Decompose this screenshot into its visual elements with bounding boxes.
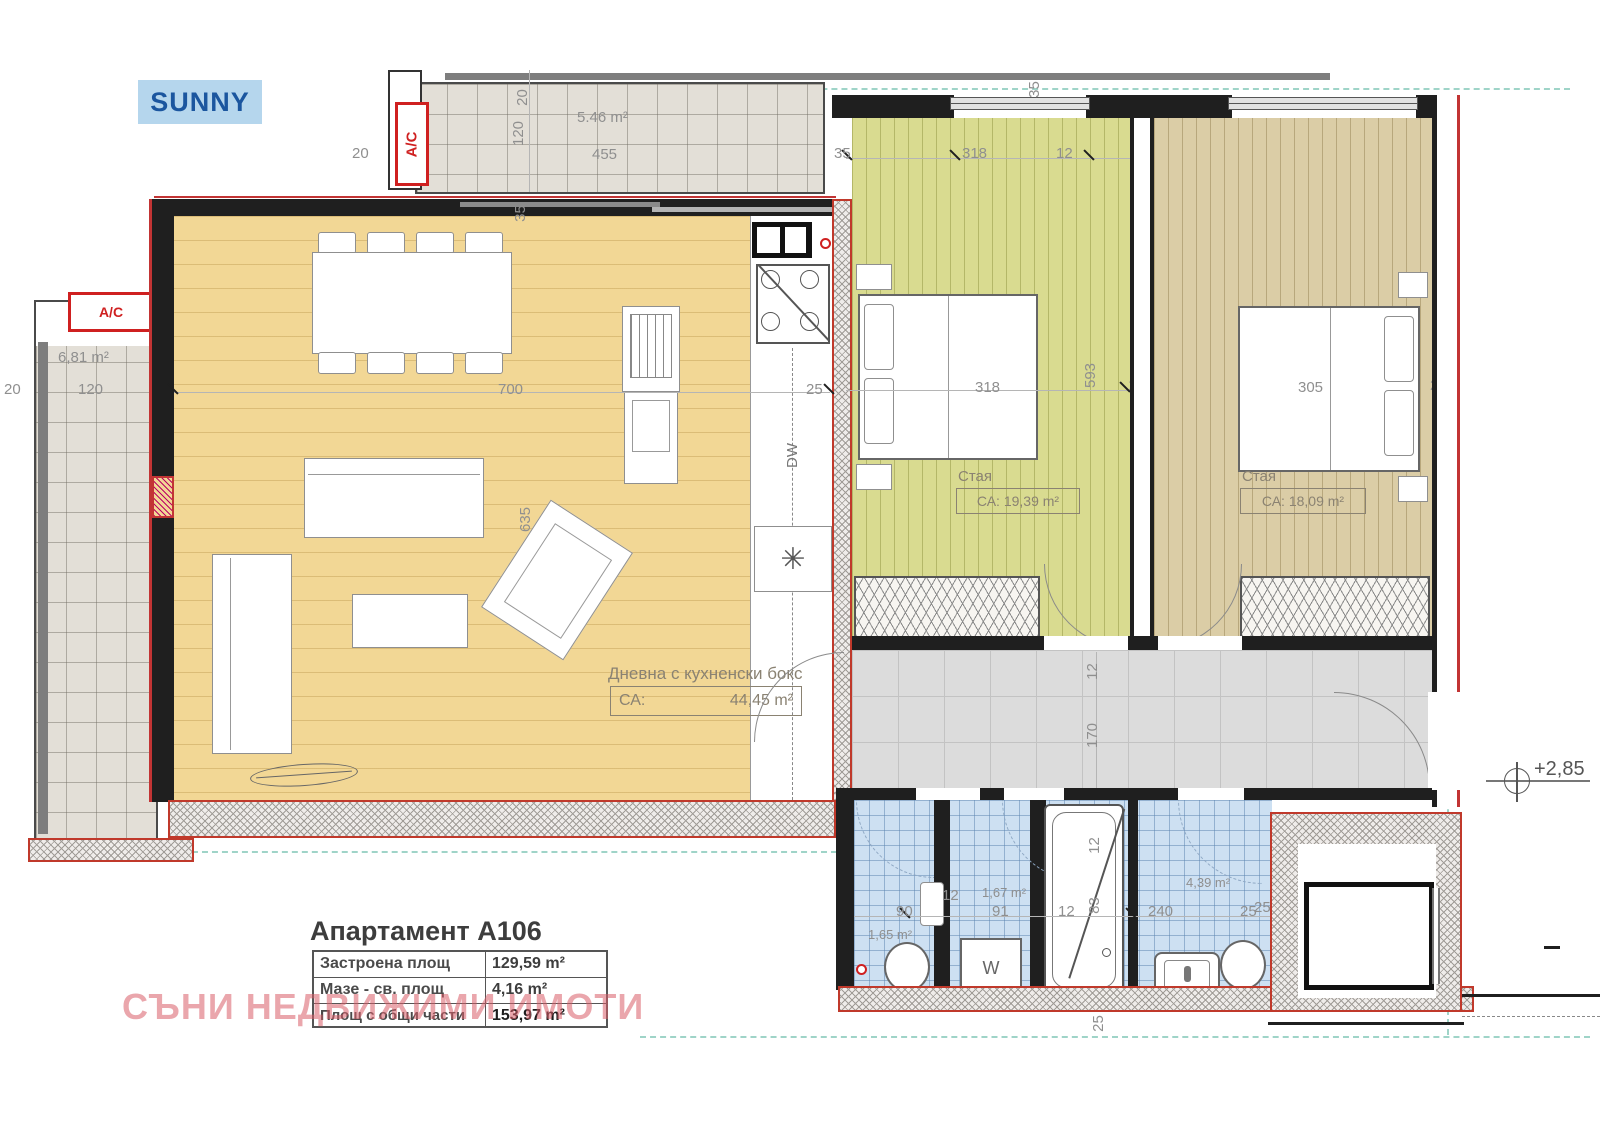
centerline [192,851,837,853]
area-value: СА: 19,39 m² [977,493,1059,509]
bath1-area: 1,65 m² [868,928,912,941]
wall-dash-line [1462,1016,1600,1017]
dim-label: 35 [1027,81,1042,98]
sofa-backrest-line [308,474,480,475]
watermark: СЪНИ НЕДВИЖИМИ ИМОТИ [122,986,644,1028]
row-value: 129,59 m² [486,952,606,977]
bath3-area: 4,39 m² [1186,876,1230,889]
kitchen-island-grill [630,314,672,378]
sink-faucet [1184,966,1191,982]
dim-label: 120 [78,382,103,397]
sofa-vertical [212,554,292,754]
balcony-rail-bar [38,342,48,834]
dim-label: 170 [1085,723,1100,748]
balcony-left-bottom-wall [28,838,194,862]
dim-label: 12 [942,888,959,903]
dim-label: 455 [592,147,617,162]
living-bottom-wall [168,800,836,838]
dim-label: 700 [498,382,523,397]
dining-chair [465,352,503,374]
bath-divider [1128,800,1138,988]
stove-burner [761,312,780,331]
dim-label: 25 [806,382,823,397]
sliding-door [652,207,834,212]
dining-chair [416,352,454,374]
door-gap [916,788,980,800]
dim-label: 593 [1083,363,1098,388]
nightstand [856,264,892,290]
balcony-top-area: 5.46 m² [577,110,628,125]
bedroom2-name: Стая [1242,468,1276,485]
sofa-horizontal [304,458,484,538]
bedroom-divider-wall [1130,118,1154,650]
bedroom-top-wall [1086,95,1232,118]
roof-edge-bar [445,73,1330,80]
door-gap [1044,636,1128,650]
dim-label: 25 [1091,1015,1106,1032]
door-gap [1004,788,1064,800]
apartment-title: Апартамент А106 [310,916,542,947]
dim-label: 20 [4,382,21,397]
dim-label: 318 [962,146,987,161]
bedroom-top-wall [832,95,954,118]
kitchen-sink-bowl [785,227,806,253]
dim-label: 25 [1254,900,1271,915]
area-prefix: СА: [619,692,645,710]
dining-chair [465,232,503,254]
dining-table [312,252,512,354]
living-room-name: Дневна с кухненски бокс [608,664,803,684]
level-cross [1516,762,1518,802]
balcony-top-floor [415,82,825,194]
pillow [864,378,894,444]
dim-label: 240 [1148,904,1173,919]
bathtub-inner [1052,812,1116,988]
bedroom1-name: Стая [958,468,992,485]
dining-chair [318,352,356,374]
bed-blanket-line [1330,308,1331,470]
dim-label: 35 [834,146,851,161]
dim-label: 12 [1087,837,1102,854]
corridor-top-wall [852,636,1432,650]
living-top-wall-redline [154,196,836,198]
dining-chair [367,352,405,374]
door-gap [1158,636,1242,650]
bath-left-wall [836,788,854,990]
outlet-marker [856,964,867,975]
area-value: СА: 18,09 m² [1262,493,1344,509]
wall-line [1268,1022,1464,1025]
dim-label: 12 [1058,904,1075,919]
dining-chair [416,232,454,254]
dim-label: 91 [992,904,1009,919]
dishwasher-label: DW [785,443,800,468]
bedroom2-window [1228,97,1418,110]
nightstand [1398,272,1428,298]
wall-tick [1544,946,1560,949]
level-text: +2,85 [1534,758,1585,781]
outlet-marker [820,238,831,249]
nightstand [1398,476,1428,502]
dim-label: 635 [518,507,533,532]
dining-chair [318,232,356,254]
washer-label: W [983,958,1000,979]
fridge: ✳ [754,526,832,592]
floor-plan-canvas: SUNNY A/C 20 20 120 5.46 m² 455 A/C 6,81… [0,0,1600,1131]
dim-label: 90 [896,904,913,919]
dim-label: 12 [1056,146,1073,161]
bathtub-drain [1102,948,1111,957]
pillow [1384,316,1414,382]
ac-unit-left: A/C [68,292,154,332]
shaft-door-bars [1432,888,1440,984]
dim-label: 20 [352,146,369,161]
door-gap [1178,788,1244,800]
toilet [1220,940,1266,990]
bed-blanket-line [948,296,949,458]
balcony-left-area: 6,81 m² [58,350,109,365]
wardrobe [854,576,1040,638]
dim-label: 83 [1087,897,1102,914]
bath-door-leaf [920,882,944,926]
dim-label: 12 [1085,663,1100,680]
pillow [1384,390,1414,456]
dim-label: 35 [513,205,528,222]
table-row: Застроена площ 129,59 m² [314,952,606,978]
nightstand [856,464,892,490]
logo: SUNNY [138,80,262,124]
toilet [884,942,930,992]
ac-unit-top: A/C [395,102,429,186]
bedroom1-area-box: СА: 19,39 m² [956,488,1080,514]
wall-sill [152,476,174,518]
dim-label: 318 [975,380,1000,395]
shaft-box [1304,882,1434,990]
sliding-door [460,202,660,207]
pillow [864,304,894,370]
bedroom2-area-box: СА: 18,09 m² [1240,488,1366,514]
dim-label: 305 [1298,380,1323,395]
row-label: Застроена площ [314,952,486,977]
fridge-symbol: ✳ [780,542,805,577]
coffee-table [352,594,468,648]
bedroom1-window [950,97,1090,110]
centerline [640,1036,1590,1038]
wall-line [1462,994,1600,997]
wardrobe [1240,576,1430,638]
dim-label: 120 [511,121,526,146]
stove-burner [800,270,819,289]
ac-label: A/C [99,304,123,320]
entrance-door-gap [1428,692,1462,790]
kitchen-island-inner [632,400,670,452]
sofa-backrest-line [230,558,231,750]
dim-label: 20 [515,89,530,106]
logo-text: SUNNY [150,87,250,118]
kitchen-sink-bowl [757,227,780,253]
ac-label: A/C [405,131,420,157]
bath2-area: 1,67 m² [982,886,1026,899]
dining-chair [367,232,405,254]
